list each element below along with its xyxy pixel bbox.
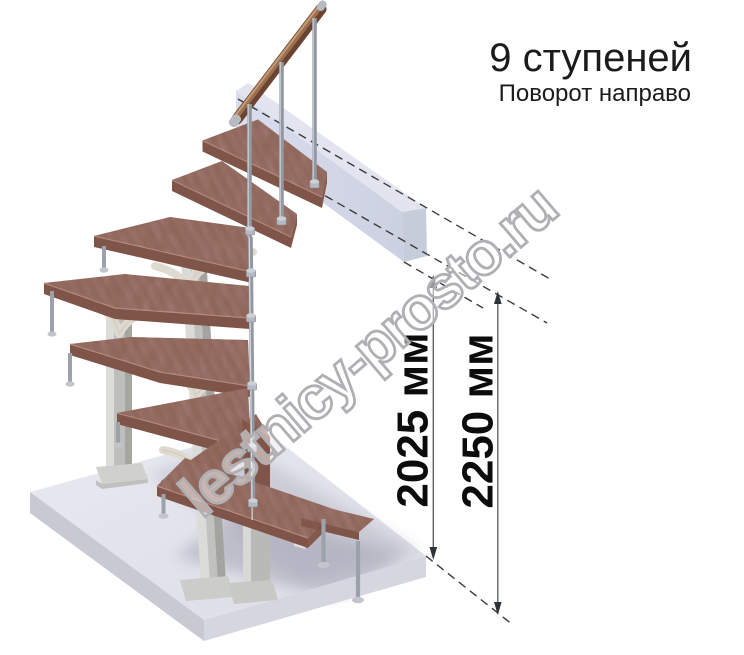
svg-text:9 ступеней: 9 ступеней bbox=[489, 36, 692, 80]
svg-text:2250 мм: 2250 мм bbox=[454, 333, 503, 508]
svg-text:Поворот направо: Поворот направо bbox=[499, 80, 691, 107]
